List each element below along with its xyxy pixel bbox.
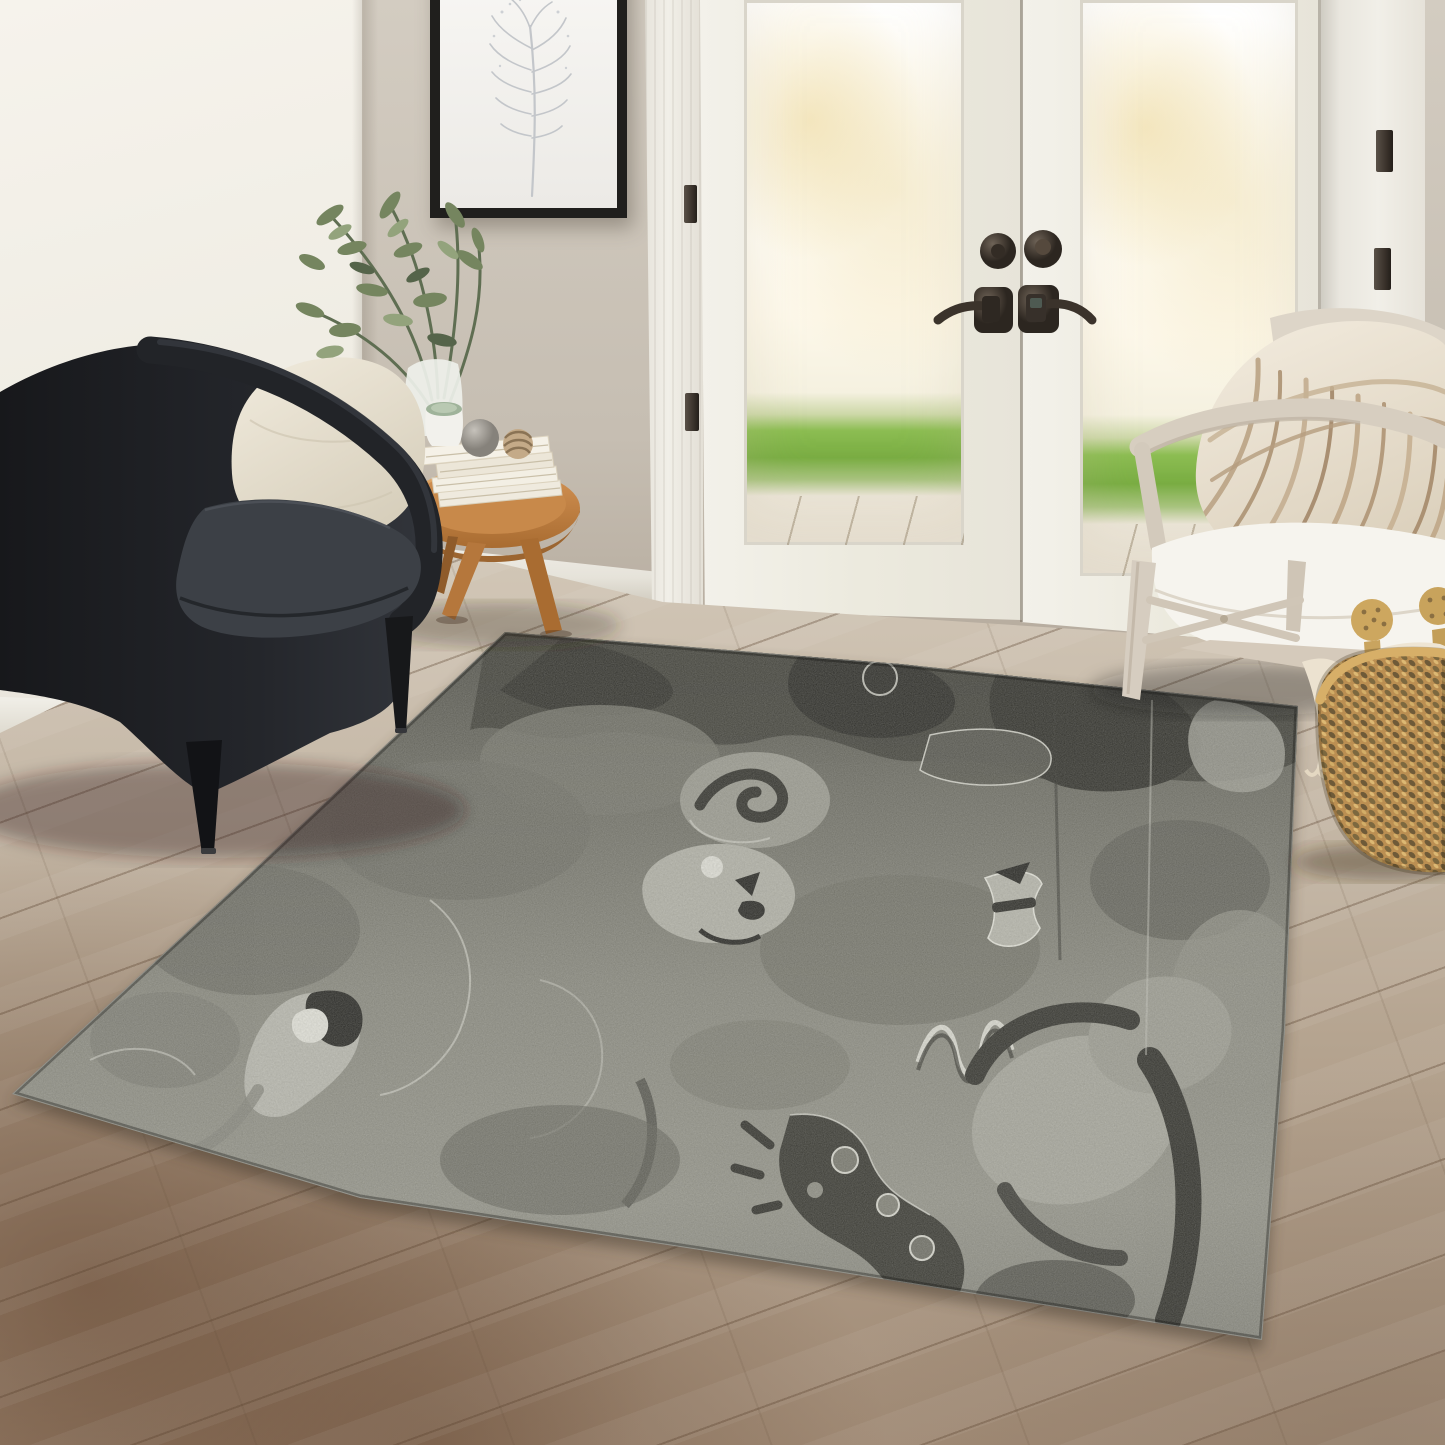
accent-chair[interactable] (1122, 308, 1445, 700)
basket-body (1318, 650, 1445, 873)
living-room-photo (0, 0, 1445, 1445)
rope-sphere (503, 429, 533, 459)
furniture-layer (0, 0, 1445, 1445)
stone-sphere (461, 419, 499, 457)
mug (425, 402, 463, 446)
